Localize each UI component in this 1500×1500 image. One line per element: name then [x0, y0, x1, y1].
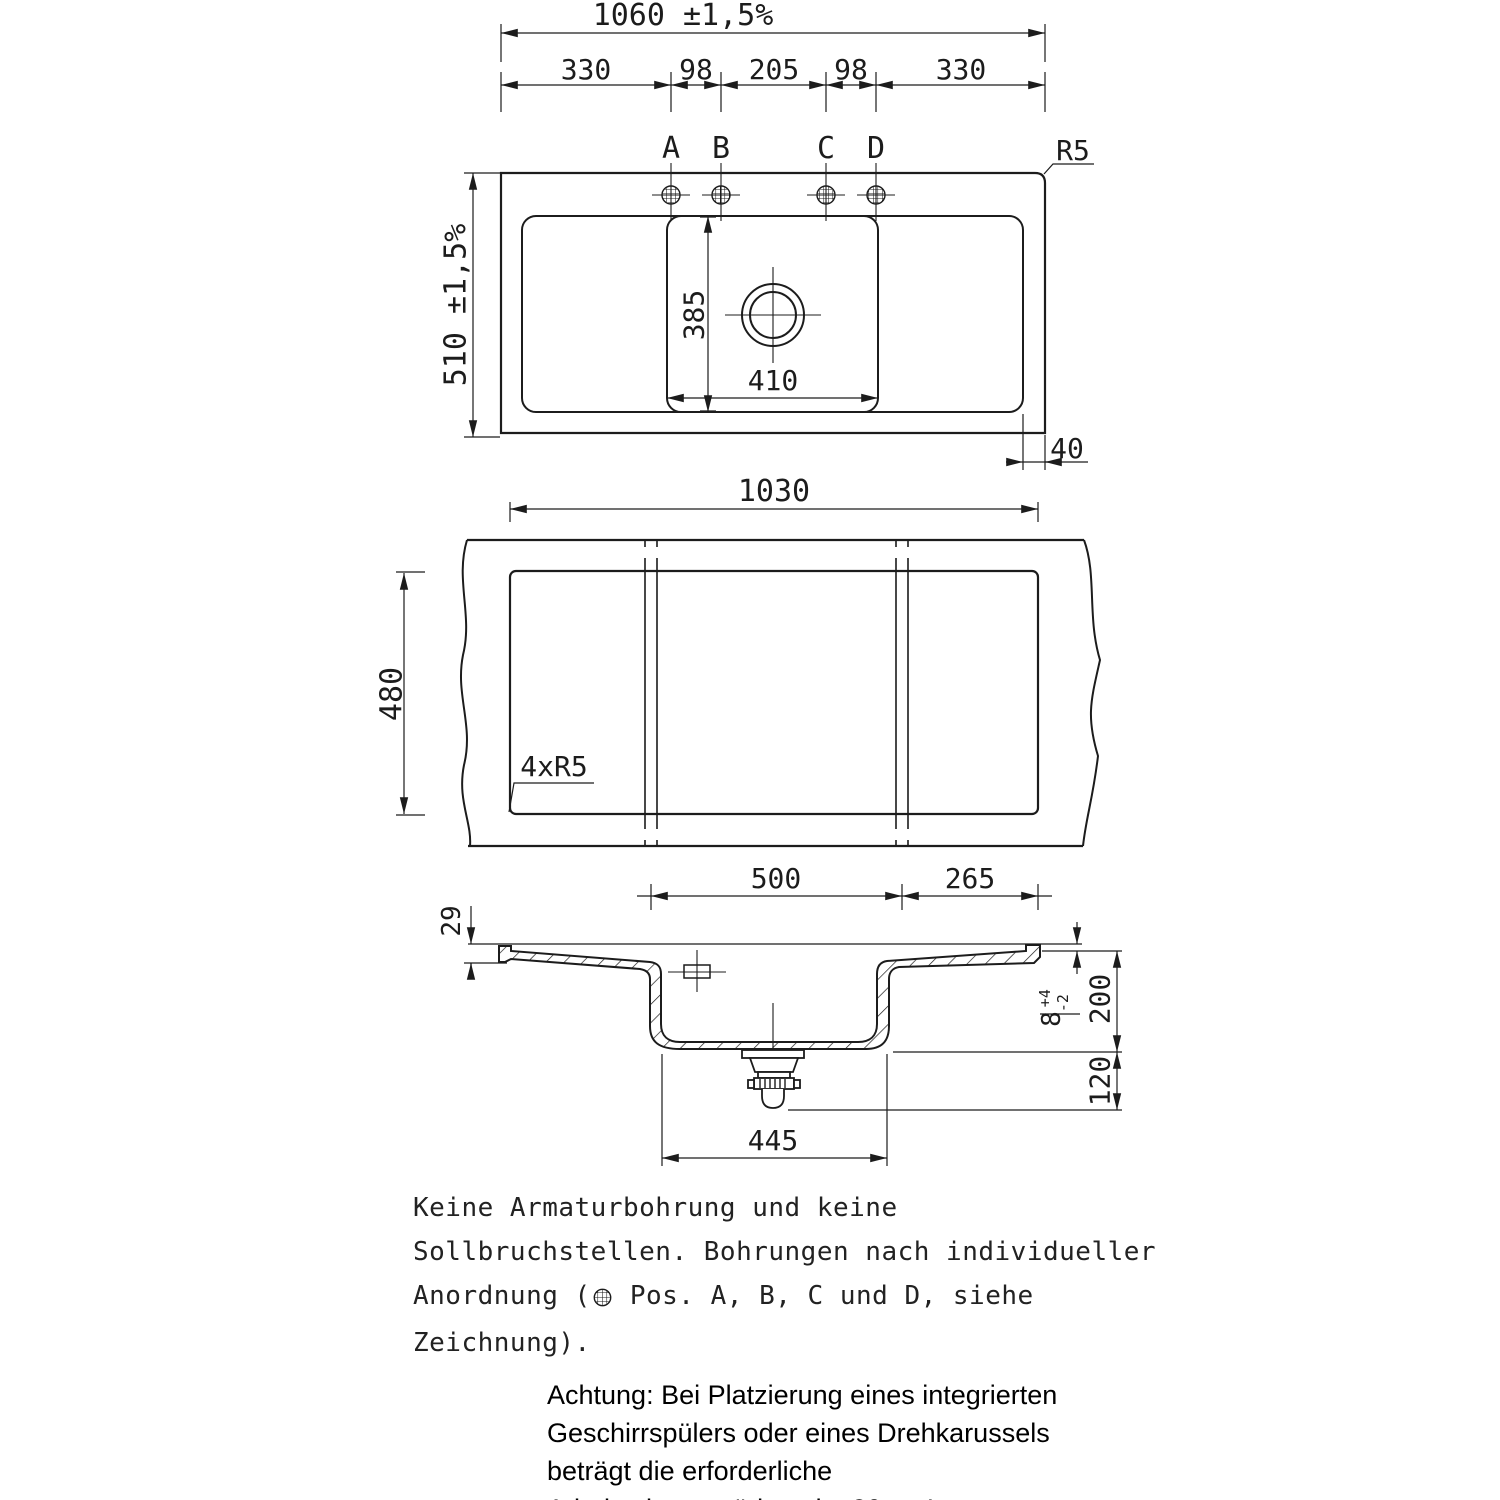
section-view [468, 944, 1082, 1108]
faucet-holes [662, 186, 885, 204]
dim-bowl-width: 445 [748, 1124, 799, 1157]
warning-line-3: beträgt die erforderliche [547, 1452, 1167, 1490]
note-line-2: Sollbruchstellen. Bohrungen nach individ… [413, 1230, 1193, 1274]
drill-position-icon [593, 1277, 612, 1321]
warning-line-2: Geschirrspülers oder eines Drehkarussels [547, 1414, 1167, 1452]
warning-line-4: Arbeitsplattenstärke min. 30mm! [547, 1490, 1167, 1500]
note-line-3-pre: Anordnung ( [413, 1281, 591, 1311]
dim-drain-height: 120 [1084, 1056, 1117, 1107]
dim-rim-thickness: 29 [437, 905, 467, 936]
faucet-hole-d [867, 186, 885, 204]
warning-line-1: Achtung: Bei Platzierung eines integrier… [547, 1376, 1167, 1414]
note-line-1: Keine Armaturbohrung und keine [413, 1186, 1193, 1230]
rim-step-tol-minus: -2 [1054, 994, 1072, 1012]
dim-basin-width: 410 [748, 364, 799, 397]
note-line-3: Anordnung ( Pos. A, B, C und D, siehe [413, 1274, 1193, 1321]
note-line-4: Zeichnung). [413, 1321, 1193, 1365]
sink-shell-section [499, 945, 1040, 1049]
hole-label-c: C [817, 131, 835, 166]
cutout-outline [510, 571, 1038, 814]
note-line-3-post: Pos. A, B, C und D, siehe [614, 1281, 1034, 1311]
cutout-view-dimensions [396, 502, 1052, 910]
dim-basin-height: 385 [678, 290, 711, 341]
dim-seg-98-right: 98 [834, 53, 868, 86]
faucet-hole-b [712, 186, 730, 204]
fixing-clip [668, 950, 726, 992]
drain-neck [758, 1072, 790, 1078]
technical-drawing-page: 1060 ±1,5% 330 98 205 98 330 A B C D R5 … [0, 0, 1500, 1500]
top-view-dimensions [464, 24, 1094, 470]
dim-offset-right: 265 [945, 862, 996, 895]
dim-seg-330-left: 330 [561, 53, 612, 86]
dim-rim-step: 8+4-2 [1036, 989, 1072, 1027]
dim-seg-330-right: 330 [936, 53, 987, 86]
dim-overall-width: 1060 ±1,5% [593, 0, 774, 33]
drain-outlet [762, 1089, 784, 1108]
dim-seg-205: 205 [749, 53, 800, 86]
hole-label-b: B [712, 131, 730, 166]
dim-cutout-width: 1030 [738, 474, 810, 509]
worktop-break-left [461, 540, 470, 846]
hole-label-a: A [662, 131, 680, 166]
dim-offset-center: 500 [751, 862, 802, 895]
dim-cutout-height: 480 [375, 667, 410, 721]
warning-note: Achtung: Bei Platzierung eines integrier… [547, 1376, 1167, 1500]
fold-lines-left [645, 540, 657, 846]
hole-centerlines [652, 163, 895, 221]
dim-overall-height: 510 ±1,5% [439, 224, 474, 387]
dim-corner-radius: R5 [1056, 134, 1090, 167]
rim-step-value: 8 [1037, 1011, 1067, 1027]
dim-seg-98-left: 98 [679, 53, 713, 86]
worktop-break-right [1083, 540, 1100, 846]
hole-label-d: D [867, 131, 885, 166]
drain-flange [742, 1050, 804, 1058]
dim-edge-offset: 40 [1050, 432, 1084, 465]
fold-lines-right [896, 540, 908, 846]
drain-locknut [748, 1078, 800, 1089]
faucet-hole-c [817, 186, 835, 204]
faucet-hole-a [662, 186, 680, 204]
drain-assembly [742, 1003, 804, 1108]
drain-centerlines [725, 267, 821, 363]
drain-body [750, 1058, 798, 1072]
cutout-view [461, 540, 1100, 846]
technical-note: Keine Armaturbohrung und keine Sollbruch… [413, 1186, 1193, 1365]
rim-step-tol-plus: +4 [1036, 989, 1054, 1007]
dim-bowl-depth: 200 [1084, 974, 1117, 1025]
corner-radius-leader [509, 783, 594, 812]
dim-cutout-corner-note: 4xR5 [520, 750, 587, 783]
